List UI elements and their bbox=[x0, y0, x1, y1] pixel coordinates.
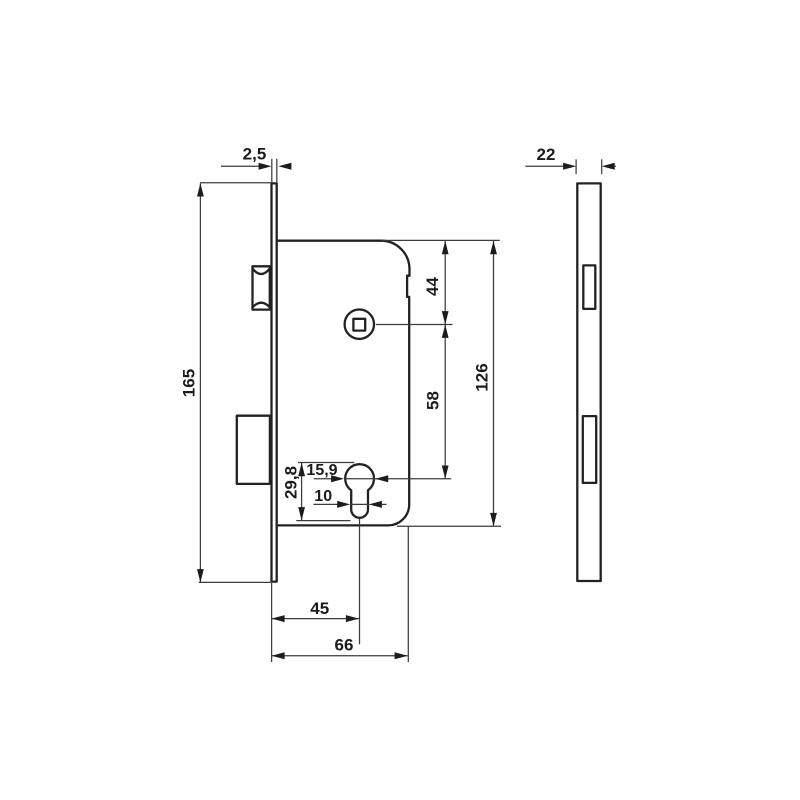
svg-text:29,8: 29,8 bbox=[281, 466, 300, 499]
svg-text:58: 58 bbox=[424, 391, 443, 410]
svg-text:126: 126 bbox=[473, 363, 492, 391]
svg-text:22: 22 bbox=[537, 145, 556, 164]
svg-text:44: 44 bbox=[423, 277, 442, 296]
svg-text:45: 45 bbox=[310, 599, 329, 618]
svg-text:10: 10 bbox=[314, 488, 332, 505]
svg-text:165: 165 bbox=[179, 369, 198, 397]
svg-text:2,5: 2,5 bbox=[243, 145, 267, 164]
svg-text:66: 66 bbox=[335, 635, 354, 654]
